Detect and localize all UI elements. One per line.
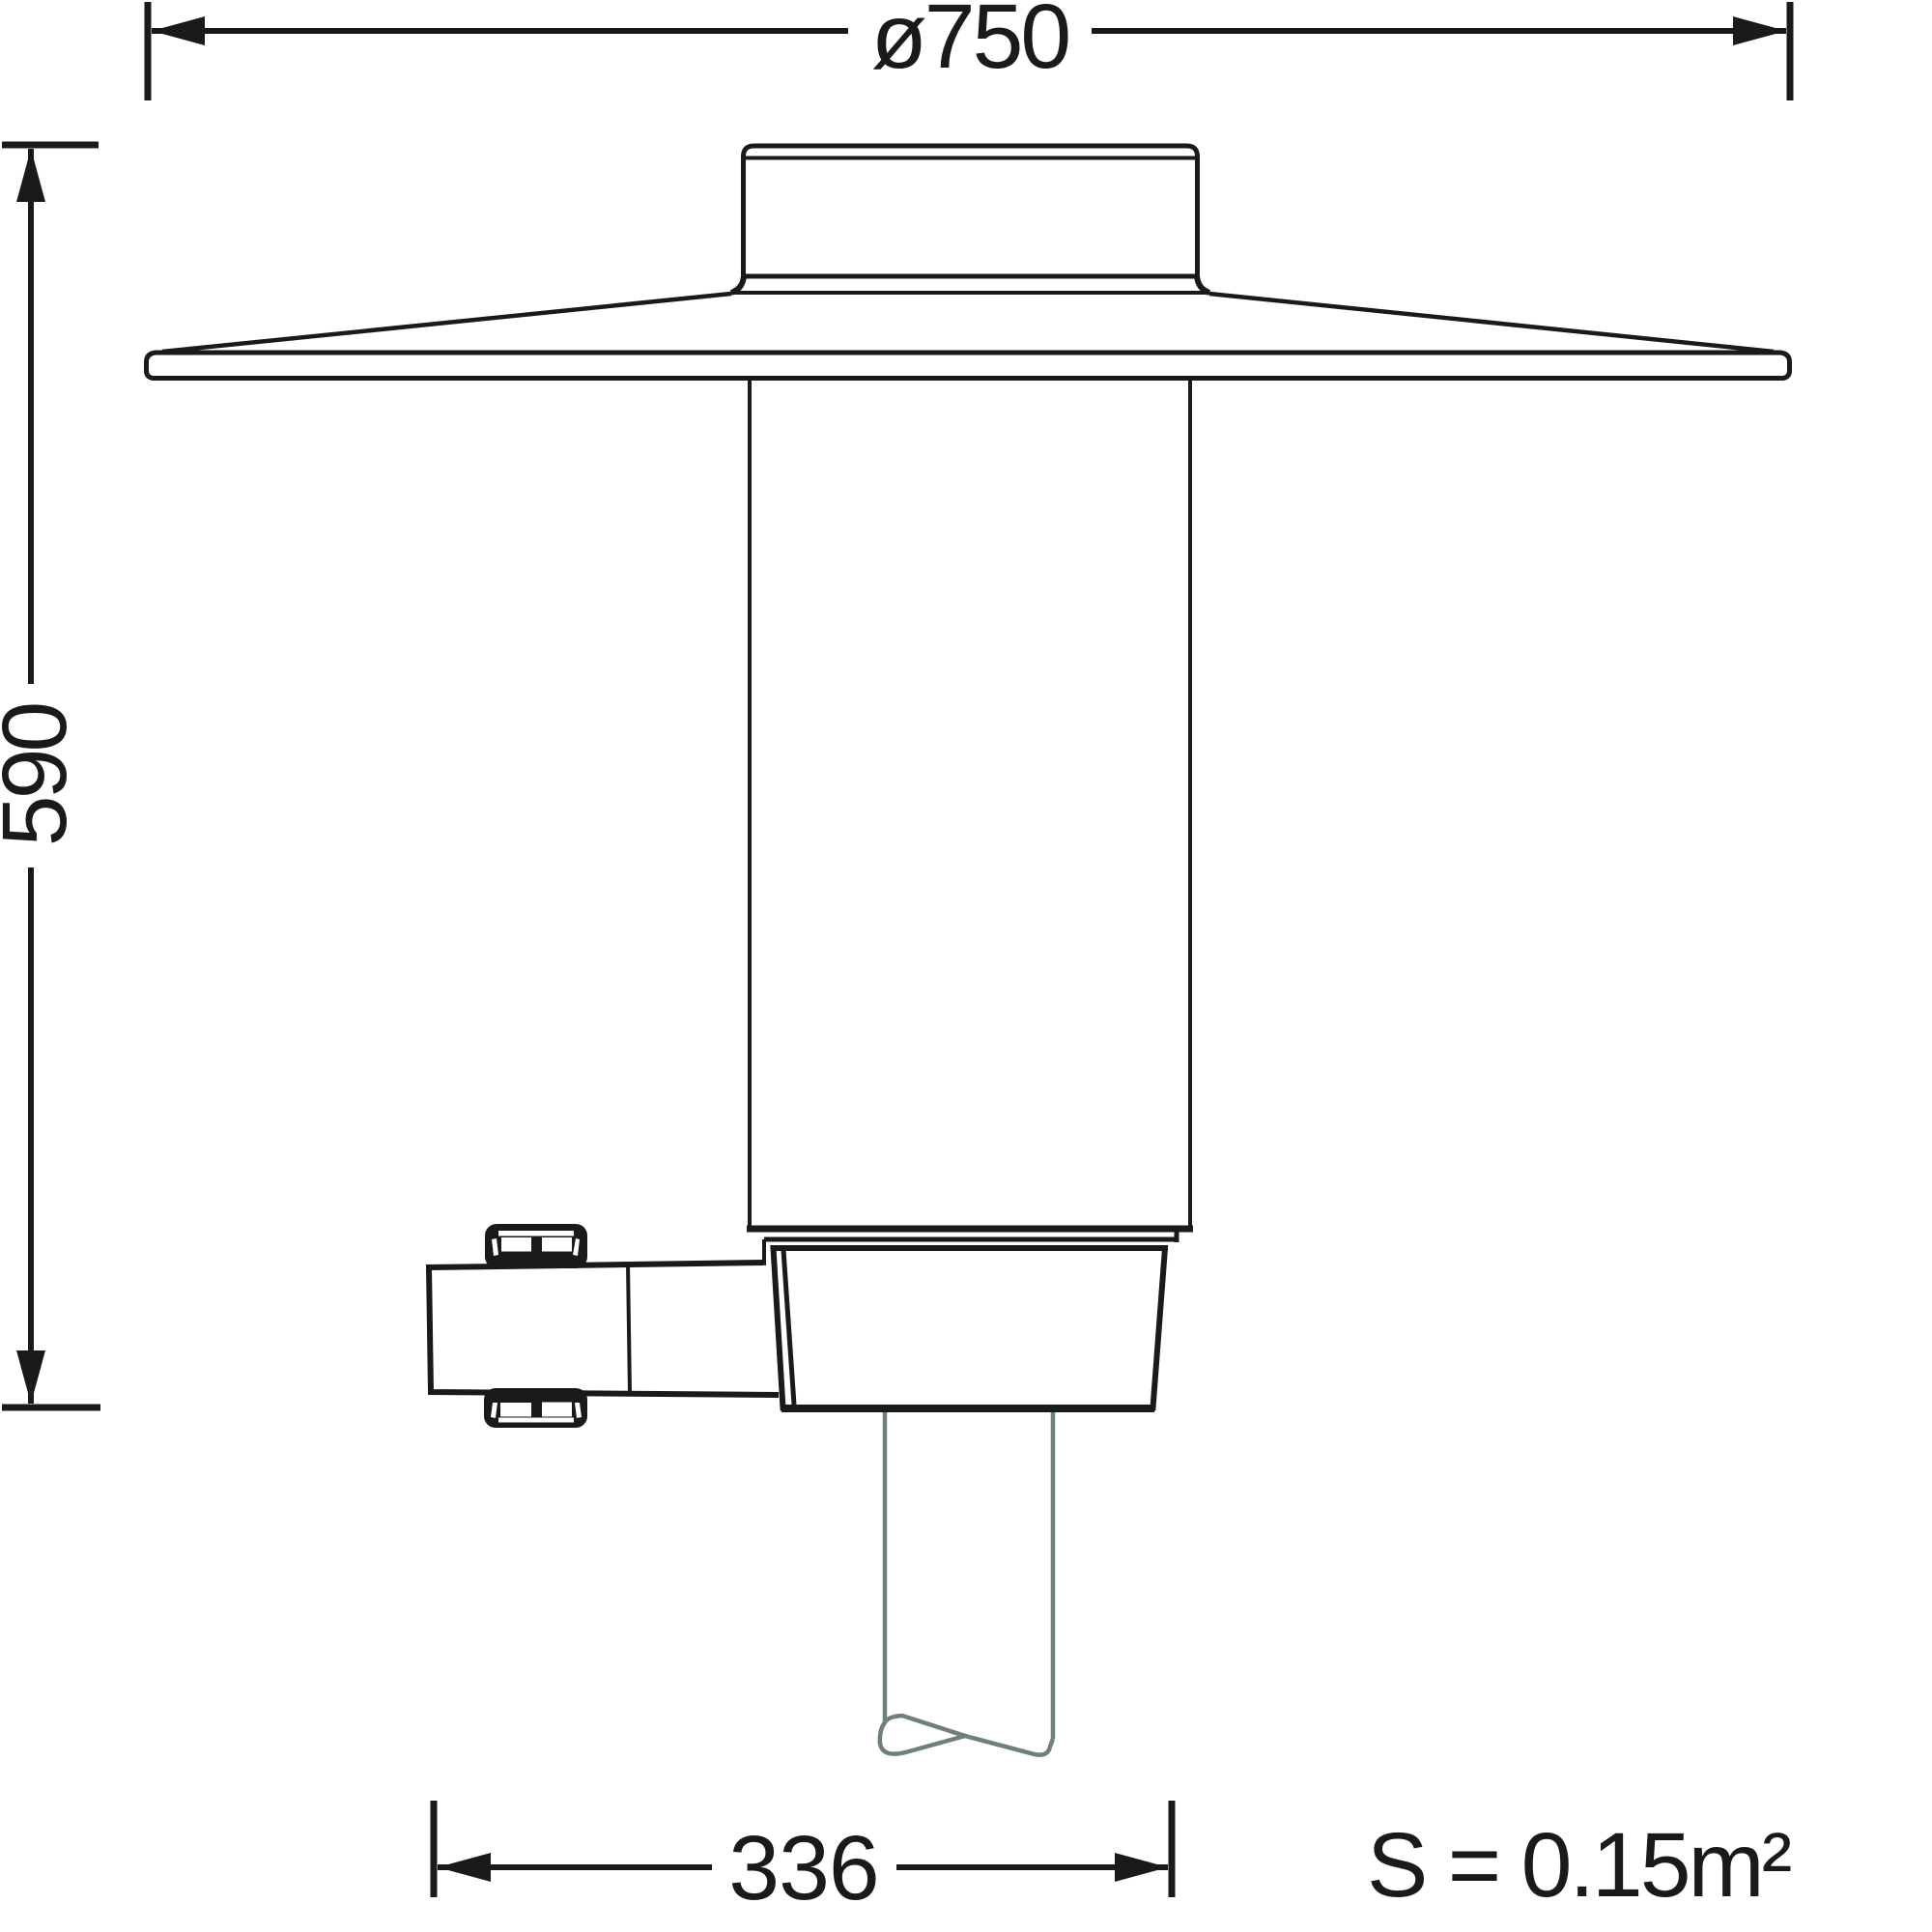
svg-text:S = 0.15m²: S = 0.15m² [1367,1814,1791,1917]
svg-text:590: 590 [0,704,86,847]
svg-text:336: 336 [728,1817,879,1919]
svg-text:ø750: ø750 [871,0,1069,88]
